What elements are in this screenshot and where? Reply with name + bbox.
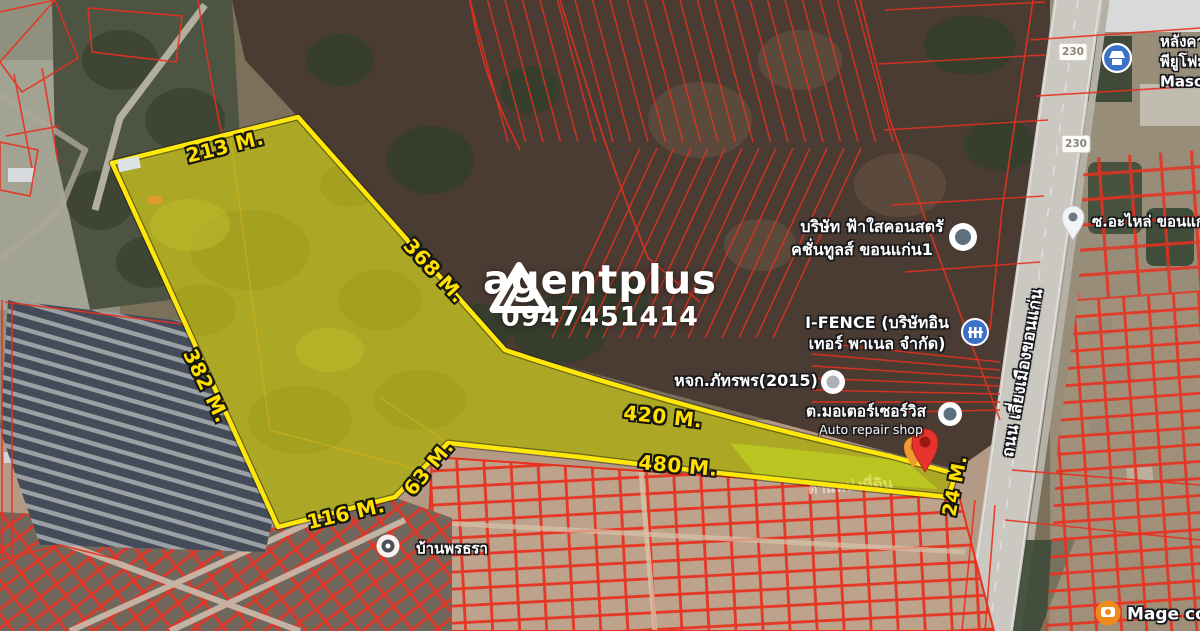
- marker-masonry[interactable]: [1103, 44, 1131, 72]
- masonry-label-line2: พียูโฟม: [1160, 53, 1200, 72]
- marker-ifence[interactable]: [962, 319, 988, 345]
- route-shield-230-bottom: 230: [1062, 135, 1091, 153]
- motor-service-sublabel: Auto repair shop: [819, 422, 923, 438]
- map-attribution-text: Mage co: [1127, 604, 1200, 625]
- ifence-label-line2: เทอร์ พาเนล จำกัด): [809, 334, 946, 354]
- ifence-label-line1: I-FENCE (บริษัทอิน: [805, 313, 949, 333]
- marker-phatraporn[interactable]: [821, 370, 845, 394]
- ban-porn-label: บ้านพรธรา: [416, 540, 488, 559]
- satellite-map-canvas: ตำแหน่งที่ดิน: [0, 0, 1200, 631]
- route-shield-230-top: 230: [1059, 43, 1088, 61]
- attribution-photo-icon[interactable]: [1096, 601, 1121, 626]
- motor-service-label: ต.มอเตอร์เซอร์วิส: [806, 402, 926, 421]
- triangle-a-logo-icon: [483, 260, 555, 318]
- soi-alai-label: ซ.อะไหล่ ขอนแก่น: [1092, 213, 1200, 232]
- marker-construction-company[interactable]: [949, 223, 977, 251]
- watermark: agentplus 0947451414: [483, 260, 717, 333]
- marker-ban-porn[interactable]: [377, 535, 400, 558]
- masonry-label-line3: Masonry: [1160, 73, 1200, 92]
- masonry-label-line1: หลังคาเ: [1160, 33, 1200, 52]
- construction-company-label-line1: บริษัท ฟ้าใสคอนสตรั: [800, 217, 943, 237]
- phatraporn-label: หจก.ภัทรพร(2015): [674, 371, 818, 391]
- construction-company-label-line2: คชั่นทูลส์ ขอนแก่น1: [791, 240, 933, 260]
- marker-motor-service[interactable]: [938, 402, 962, 426]
